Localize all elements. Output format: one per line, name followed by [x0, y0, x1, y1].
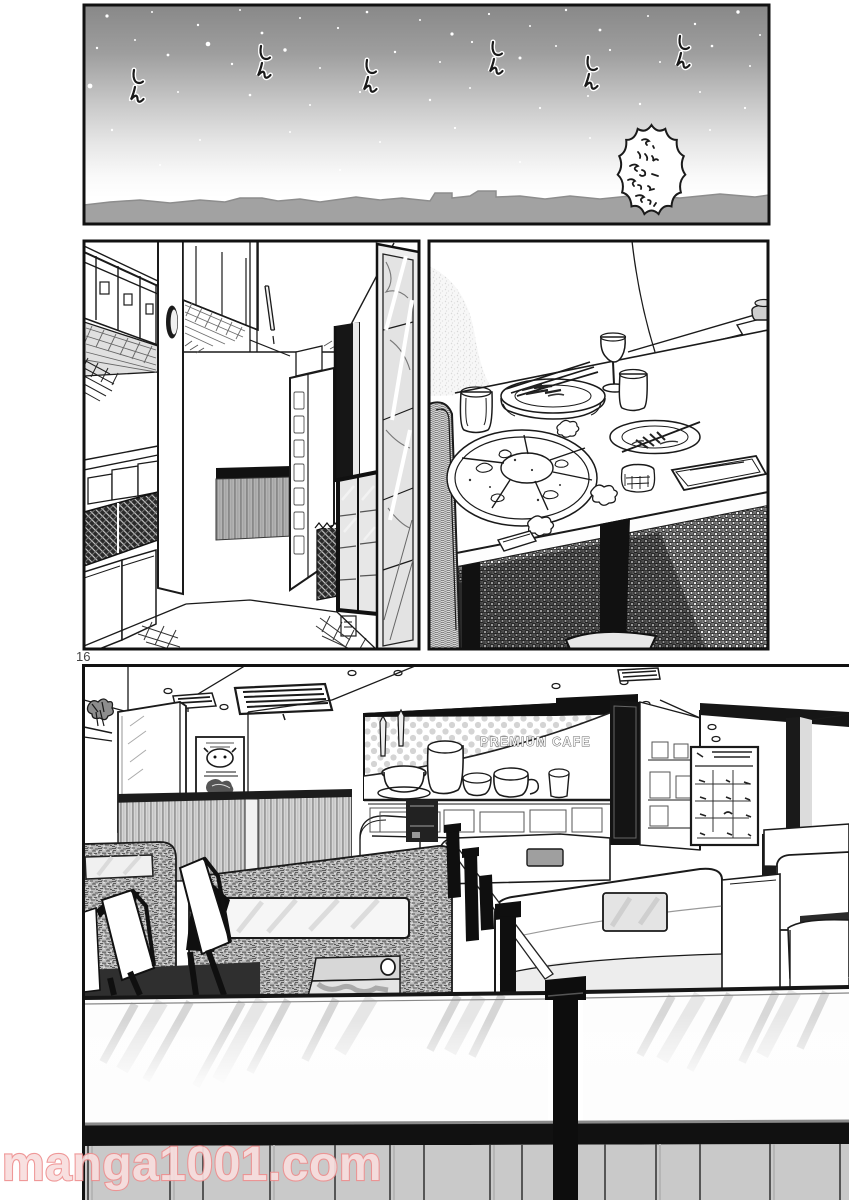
svg-text:PREMIUM CAFE: PREMIUM CAFE — [480, 735, 591, 749]
svg-text:manga1001.com: manga1001.com — [2, 1138, 382, 1191]
svg-text:16: 16 — [76, 649, 90, 664]
